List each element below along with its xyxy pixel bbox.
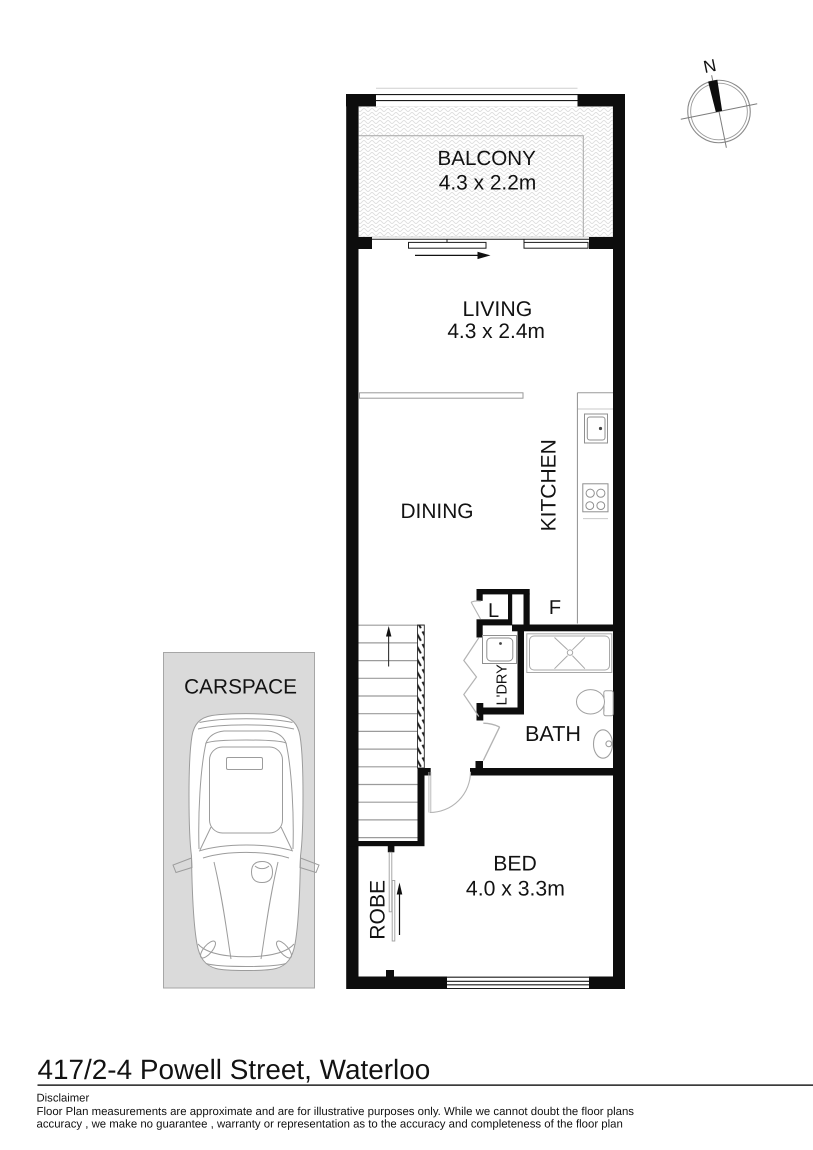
svg-text:4.0 x 3.3m: 4.0 x 3.3m <box>466 878 565 901</box>
svg-text:BED: BED <box>493 853 537 876</box>
svg-text:L'DRY: L'DRY <box>495 664 511 706</box>
svg-text:4.3 x 2.4m: 4.3 x 2.4m <box>447 320 545 343</box>
svg-text:ROBE: ROBE <box>366 880 389 940</box>
svg-text:KITCHEN: KITCHEN <box>538 439 561 531</box>
svg-text:4.3 x 2.2m: 4.3 x 2.2m <box>439 172 537 195</box>
svg-text:accuracy , we make no guarante: accuracy , we make no guarantee , warran… <box>37 1118 623 1130</box>
svg-text:Disclaimer: Disclaimer <box>37 1093 90 1105</box>
svg-text:BALCONY: BALCONY <box>437 147 536 170</box>
svg-text:Floor Plan measurements are ap: Floor Plan measurements are approximate … <box>37 1106 635 1118</box>
svg-text:417/2-4 Powell Street, Waterlo: 417/2-4 Powell Street, Waterloo <box>38 1054 431 1085</box>
svg-text:LIVING: LIVING <box>462 297 532 321</box>
svg-text:BATH: BATH <box>525 721 581 746</box>
svg-text:DINING: DINING <box>400 500 473 523</box>
svg-text:CARSPACE: CARSPACE <box>184 676 297 699</box>
svg-text:F: F <box>549 597 561 619</box>
svg-text:L: L <box>488 600 499 622</box>
